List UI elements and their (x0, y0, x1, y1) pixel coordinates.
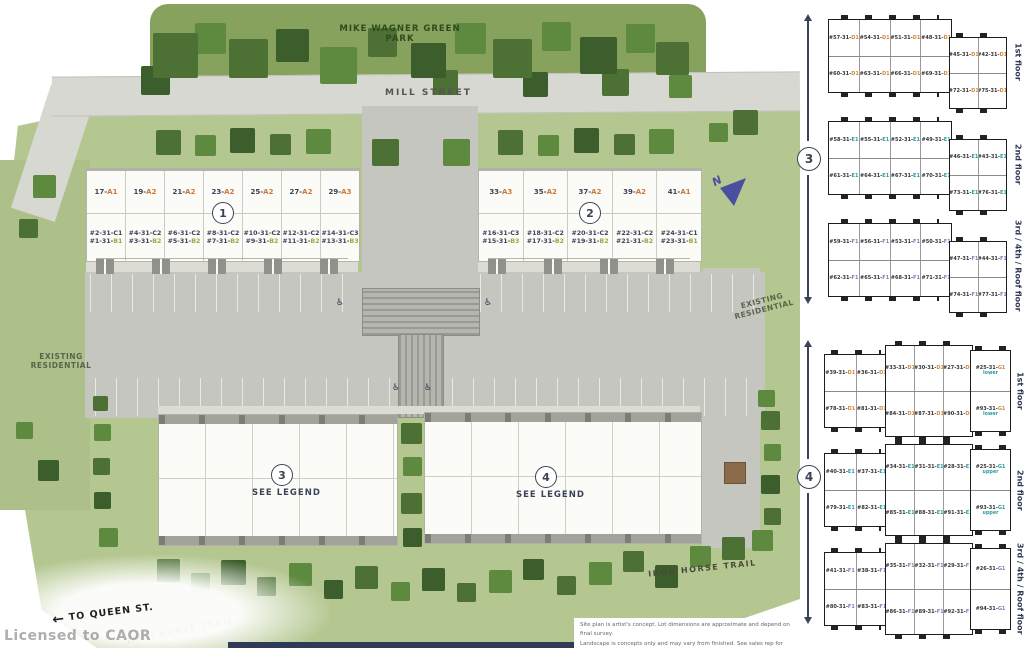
floorplan-annex-block: #47-31-F1#44-31-F1 #74-31-F1#77-31-F1 (949, 241, 1007, 313)
building-3-floorplans: #57-31-D1#54-31-D1#51-31-D1#48-31-D1 #60… (828, 14, 1024, 314)
floorplan-unit: #88-31-E1 (914, 491, 943, 536)
floorplan-unit: #92-31-F1 (943, 590, 972, 635)
floorplan-unit: #90-31-D1 (943, 392, 972, 437)
floorplan-unit: #64-31-E1 (859, 159, 890, 195)
accessible-parking-icon: ♿ (484, 299, 492, 308)
lot-type: A2 (636, 188, 646, 196)
lower-unit: #15-31-B3 (482, 238, 519, 245)
floorplan-unit: #39-31-D1 (825, 355, 856, 391)
bracket-line (807, 175, 809, 297)
upper-unit: #24-31-C1 (661, 230, 698, 237)
floorplan-unit: #77-31-F1 (978, 278, 1007, 313)
floorplan-row: #79-31-E1#82-31-E1 (825, 490, 887, 527)
bracket-arrow-up (804, 340, 812, 347)
floorplan-unit: #65-31-F1 (859, 261, 890, 297)
floorplan-unit: #41-31-F1 (825, 553, 856, 589)
lot-number: 21- (173, 188, 186, 196)
upper-unit: #8-31-C2 (207, 230, 240, 237)
floorplan-b3-2nd: #58-31-E1#55-31-E1#52-31-E1#49-31-E1 #61… (828, 116, 1024, 212)
disclaimer: Site plan is artist's concept. Lot dimen… (574, 618, 802, 648)
floorplan-unit: #71-31-F1 (920, 261, 951, 297)
floorplan-unit: #26-31-G1 (971, 549, 1010, 589)
building-2: 33-A3 #16-31-C3 #15-31-B3 35-A2 #18-31-C… (478, 168, 702, 262)
floor-label: 2nd floor (1012, 443, 1024, 537)
floorplan-main-block: #57-31-D1#54-31-D1#51-31-D1#48-31-D1 #60… (828, 19, 952, 93)
floorplan-b4-3rd: #41-31-F1#38-31-F1 #80-31-F1#83-31-F1 #3… (824, 542, 1020, 636)
floorplan-main-block: #59-31-F1#56-31-F1#53-31-F1#50-31-F1 #62… (828, 223, 952, 297)
floorplan-row: #47-31-F1#44-31-F1 (950, 242, 1006, 277)
lower-unit: #5-31-B2 (168, 238, 201, 245)
floorplan-unit: #38-31-F1 (856, 553, 888, 589)
unit-cell: 21-A2 #6-31-C2 #5-31-B2 (164, 171, 203, 261)
existing-residential-left: EXISTING RESIDENTIAL (30, 352, 92, 370)
floorplan-unit: #49-31-E1 (920, 122, 951, 158)
lot-label: 21-A2 (165, 171, 203, 214)
floorplan-unit: #63-31-D1 (859, 57, 890, 93)
floorplan-unit: #29-31-F1 (943, 544, 972, 589)
bracket-line (807, 347, 809, 459)
lower-unit: #23-31-B1 (661, 238, 698, 245)
floorplan-unit: #36-31-D1 (856, 355, 888, 391)
unit-cell: 19-A2 #4-31-C2 #3-31-B2 (125, 171, 164, 261)
floorplan-unit: #48-31-D1 (920, 20, 951, 56)
floorplan-row: #84-31-D1#87-31-D1#90-31-D1 (886, 391, 972, 437)
floorplan-unit: #40-31-E1 (825, 454, 856, 490)
floorplan-unit: #94-31-G1 (971, 589, 1010, 630)
disclaimer-line2: Landscape is concepts only and may vary … (580, 640, 796, 648)
floorplan-unit: #93-31-G1upper (971, 490, 1010, 531)
lower-unit: #17-31-B2 (527, 238, 564, 245)
floorplan-unit: #34-31-E1 (886, 445, 914, 490)
upper-unit: #12-31-C2 (282, 230, 319, 237)
upper-unit: #6-31-C2 (168, 230, 201, 237)
floorplan-b4-1st: #39-31-D1#36-31-D1 #78-31-D1#81-31-D1 #3… (824, 344, 1020, 438)
lot-type: A2 (185, 188, 195, 196)
disclaimer-line1: Site plan is artist's concept. Lot dimen… (580, 621, 796, 640)
floorplan-unit: #62-31-F1 (829, 261, 859, 297)
lower-unit: #13-31-B3 (321, 238, 358, 245)
floorplan-unit: #80-31-F1 (825, 590, 856, 626)
floorplan-unit: #91-31-E1 (943, 491, 972, 536)
parking-stalls (90, 274, 360, 312)
floorplan-row: #73-31-E1#76-31-E1 (950, 175, 1006, 211)
accessible-parking-icon: ♿ (392, 384, 400, 393)
floorplan-unit: #30-31-D1 (914, 346, 943, 391)
lot-type: A2 (302, 188, 312, 196)
floorplan-b3-3rd: #59-31-F1#56-31-F1#53-31-F1#50-31-F1 #62… (828, 218, 1024, 314)
floorplan-row: #40-31-E1#37-31-E1 (825, 454, 887, 490)
floorplan-mid-block: #33-31-D1#30-31-D1#27-31-D1 #84-31-D1#87… (885, 345, 973, 437)
lot-label: 33-A3 (479, 171, 523, 214)
floorplan-unit: #85-31-E1 (886, 491, 914, 536)
floorplan-unit: #70-31-E1 (920, 159, 951, 195)
upper-unit: #4-31-C2 (129, 230, 162, 237)
north-letter: N (710, 173, 724, 189)
see-legend-label: SEE LEGEND (516, 490, 576, 500)
building-4-floorplans: #39-31-D1#36-31-D1 #78-31-D1#81-31-D1 #3… (824, 344, 1020, 636)
building-2-badge: 2 (579, 202, 601, 224)
unit-numbers: #24-31-C1 #23-31-B1 (657, 214, 701, 261)
lot-number: 33- (489, 188, 502, 196)
floorplan-unit: #50-31-F1 (920, 224, 951, 260)
lot-number: 23- (212, 188, 225, 196)
building-1-garages (96, 258, 348, 274)
building-3-badge: 3 (271, 464, 293, 486)
floorplan-unit: #57-31-D1 (829, 20, 859, 56)
lot-number: 37- (579, 188, 592, 196)
unit-cell: 33-A3 #16-31-C3 #15-31-B3 (479, 171, 523, 261)
floorplan-right-block: #25-31-G1upper#93-31-G1upper (970, 449, 1011, 531)
floorplan-unit: #27-31-D1 (943, 346, 972, 391)
building-1: 17-A1 #2-31-C1 #1-31-B1 19-A2 #4-31-C2 #… (86, 168, 360, 262)
floorplan-row: #78-31-D1#81-31-D1 (825, 391, 887, 428)
floorplan-row: #85-31-E1#88-31-E1#91-31-E1 (886, 490, 972, 536)
lot-type: A2 (263, 188, 273, 196)
floorplan-left-block: #41-31-F1#38-31-F1 #80-31-F1#83-31-F1 (824, 552, 888, 626)
floorplan-unit: #75-31-D1 (978, 74, 1007, 109)
building-4-legend: 4 SEE LEGEND (516, 466, 576, 500)
lot-type: A1 (107, 188, 117, 196)
floorplan-b3-1st: #57-31-D1#54-31-D1#51-31-D1#48-31-D1 #60… (828, 14, 1024, 110)
floorplan-unit: #87-31-D1 (914, 392, 943, 437)
floorplan-unit: #82-31-E1 (856, 491, 888, 527)
lot-number: 39- (623, 188, 636, 196)
group-3-badge: 3 (797, 147, 821, 171)
lot-number: 17- (95, 188, 108, 196)
unit-numbers: #10-31-C2 #9-31-B2 (243, 214, 281, 261)
lot-number: 41- (668, 188, 681, 196)
left-arrow-icon: ← (51, 611, 66, 628)
floorplan-unit: #52-31-E1 (890, 122, 921, 158)
accessible-parking-icon: ♿ (424, 384, 432, 393)
unit-numbers: #18-31-C2 #17-31-B2 (524, 214, 568, 261)
lower-unit: #11-31-B2 (282, 238, 319, 245)
floorplan-unit: #84-31-D1 (886, 392, 914, 437)
floorplan-left-block: #39-31-D1#36-31-D1 #78-31-D1#81-31-D1 (824, 354, 888, 428)
floorplan-unit: #33-31-D1 (886, 346, 914, 391)
floorplan-unit: #89-31-F1 (914, 590, 943, 635)
floorplan-unit: #31-31-E1 (914, 445, 943, 490)
floorplan-unit: #37-31-E1 (856, 454, 888, 490)
parking-stalls (480, 274, 760, 312)
tree-canopies-bottom (0, 0, 1, 1)
lower-unit: #19-31-B2 (571, 238, 608, 245)
floorplan-annex-block: #46-31-E1#43-31-E1 #73-31-E1#76-31-E1 (949, 139, 1007, 211)
unit-numbers: #6-31-C2 #5-31-B2 (165, 214, 203, 261)
licensed-watermark: Licensed to CAOR (4, 628, 151, 644)
bracket-arrow-down (804, 617, 812, 624)
accessible-parking-icon: ♿ (336, 299, 344, 308)
floorplan-row: #34-31-E1#31-31-E1#28-31-E1 (886, 445, 972, 490)
lot-number: 35- (534, 188, 547, 196)
floorplan-unit: #59-31-F1 (829, 224, 859, 260)
floor-label: 2nd floor (1010, 116, 1024, 212)
lower-unit: #1-31-B1 (90, 238, 123, 245)
floorplan-row: #62-31-F1#65-31-F1#68-31-F1#71-31-F1 (829, 260, 951, 297)
group-4-badge: 4 (797, 465, 821, 489)
floorplan-row: #45-31-D1#42-31-D1 (950, 38, 1006, 73)
floorplan-unit: #67-31-E1 (890, 159, 921, 195)
lot-label: 17-A1 (87, 171, 125, 214)
floorplan-unit: #43-31-E1 (978, 140, 1007, 175)
lot-type: A3 (341, 188, 351, 196)
crosswalk-hatch (362, 288, 480, 336)
floorplan-unit: #81-31-D1 (856, 392, 888, 428)
unit-numbers: #12-31-C2 #11-31-B2 (282, 214, 320, 261)
floorplan-row: #59-31-F1#56-31-F1#53-31-F1#50-31-F1 (829, 224, 951, 260)
floorplan-unit: #25-31-G1lower (971, 351, 1010, 391)
lot-label: 25-A2 (243, 171, 281, 214)
floorplan-unit: #79-31-E1 (825, 491, 856, 527)
floorplan-unit: #25-31-G1upper (971, 450, 1010, 490)
unit-numbers: #22-31-C2 #21-31-B2 (613, 214, 657, 261)
central-driveway (362, 106, 478, 292)
floorplan-row: #72-31-D1#75-31-D1 (950, 73, 1006, 109)
lot-number: 27- (290, 188, 303, 196)
building-1-badge: 1 (212, 202, 234, 224)
floorplan-row: #39-31-D1#36-31-D1 (825, 355, 887, 391)
unit-numbers: #16-31-C3 #15-31-B3 (479, 214, 523, 261)
lot-label: 27-A2 (282, 171, 320, 214)
bracket-arrow-down (804, 297, 812, 304)
site-kiosk (724, 462, 746, 484)
floorplan-unit: #47-31-F1 (950, 242, 978, 277)
floorplan-unit: #69-31-D1 (920, 57, 951, 93)
floorplan-unit: #86-31-F1 (886, 590, 914, 635)
upper-unit: #2-31-C1 (90, 230, 123, 237)
floorplan-row: #33-31-D1#30-31-D1#27-31-D1 (886, 346, 972, 391)
floor-label: 1st floor (1010, 14, 1024, 110)
building-4-badge: 4 (535, 466, 557, 488)
upper-unit: #16-31-C3 (482, 230, 519, 237)
lot-label: 35-A2 (524, 171, 568, 214)
floorplan-unit: #78-31-D1 (825, 392, 856, 428)
lower-unit: #9-31-B2 (246, 238, 279, 245)
floorplan-unit: #53-31-F1 (890, 224, 921, 260)
unit-numbers: #14-31-C3 #13-31-B3 (321, 214, 359, 261)
lot-type: A3 (502, 188, 512, 196)
bracket-arrow-up (804, 14, 812, 21)
lot-label: 29-A3 (321, 171, 359, 214)
lot-type: A2 (591, 188, 601, 196)
lot-number: 25- (251, 188, 264, 196)
unit-numbers: #2-31-C1 #1-31-B1 (87, 214, 125, 261)
floorplan-unit: #73-31-E1 (950, 176, 978, 211)
floorplan-unit: #61-31-E1 (829, 159, 859, 195)
floorplan-right-block: #26-31-G1#94-31-G1 (970, 548, 1011, 630)
floorplan-row: #80-31-F1#83-31-F1 (825, 589, 887, 626)
street-label: MILL STREET (385, 88, 472, 98)
floorplan-unit: #93-31-G1lower (971, 391, 1010, 432)
unit-numbers: #4-31-C2 #3-31-B2 (126, 214, 164, 261)
floorplan-unit: #60-31-D1 (829, 57, 859, 93)
lot-type: A2 (146, 188, 156, 196)
lower-unit: #21-31-B2 (616, 238, 653, 245)
floorplan-unit: #55-31-E1 (859, 122, 890, 158)
floorplan-right-block: #25-31-G1lower#93-31-G1lower (970, 350, 1011, 432)
bracket-line (807, 493, 809, 617)
upper-unit: #14-31-C3 (321, 230, 358, 237)
footer-bar (228, 642, 574, 648)
floorplan-mid-block: #35-31-F1#32-31-F1#29-31-F1 #86-31-F1#89… (885, 543, 973, 635)
floorplan-row: #41-31-F1#38-31-F1 (825, 553, 887, 589)
unit-cell: 27-A2 #12-31-C2 #11-31-B2 (281, 171, 320, 261)
floorplan-unit: #76-31-E1 (978, 176, 1007, 211)
floorplan-unit: #54-31-D1 (859, 20, 890, 56)
lot-label: 19-A2 (126, 171, 164, 214)
lot-type: A1 (680, 188, 690, 196)
floorplan-row: #46-31-E1#43-31-E1 (950, 140, 1006, 175)
north-arrow-icon: N (708, 170, 752, 214)
floorplan-unit: #74-31-F1 (950, 278, 978, 313)
building-2-garages (488, 258, 690, 274)
floorplan-unit: #44-31-F1 (978, 242, 1007, 277)
park-label: MIKE WAGNER GREEN PARK (320, 24, 480, 44)
floorplan-row: #60-31-D1#63-31-D1#66-31-D1#69-31-D1 (829, 56, 951, 93)
unit-cell: 29-A3 #14-31-C3 #13-31-B3 (320, 171, 359, 261)
floorplan-row: #74-31-F1#77-31-F1 (950, 277, 1006, 313)
unit-cell: 35-A2 #18-31-C2 #17-31-B2 (523, 171, 568, 261)
floorplan-row: #61-31-E1#64-31-E1#67-31-E1#70-31-E1 (829, 158, 951, 195)
floorplan-unit: #68-31-F1 (890, 261, 921, 297)
upper-unit: #22-31-C2 (616, 230, 653, 237)
floorplan-unit: #32-31-F1 (914, 544, 943, 589)
floorplan-b4-2nd: #40-31-E1#37-31-E1 #79-31-E1#82-31-E1 #3… (824, 443, 1020, 537)
lot-type: A2 (547, 188, 557, 196)
floorplan-row: #35-31-F1#32-31-F1#29-31-F1 (886, 544, 972, 589)
lower-unit: #7-31-B2 (207, 238, 240, 245)
floor-label: 1st floor (1012, 344, 1024, 438)
bracket-line (807, 21, 809, 141)
floorplan-unit: #28-31-E1 (943, 445, 972, 490)
site-plan-page: ♿ ♿ ♿ ♿ 17-A1 #2-31-C1 #1-31-B1 19-A2 #4… (0, 0, 1024, 648)
floorplan-mid-block: #34-31-E1#31-31-E1#28-31-E1 #85-31-E1#88… (885, 444, 973, 536)
floorplan-annex-block: #45-31-D1#42-31-D1 #72-31-D1#75-31-D1 (949, 37, 1007, 109)
lot-label: 41-A1 (657, 171, 701, 214)
floorplan-unit: #35-31-F1 (886, 544, 914, 589)
unit-cell: 41-A1 #24-31-C1 #23-31-B1 (656, 171, 701, 261)
floor-label: 3rd / 4th / Roof floor (1010, 218, 1024, 314)
lot-number: 19- (134, 188, 147, 196)
unit-cell: 25-A2 #10-31-C2 #9-31-B2 (242, 171, 281, 261)
floorplan-unit: #83-31-F1 (856, 590, 888, 626)
see-legend-label: SEE LEGEND (252, 488, 312, 498)
unit-cell: 17-A1 #2-31-C1 #1-31-B1 (87, 171, 125, 261)
unit-cell: 39-A2 #22-31-C2 #21-31-B2 (612, 171, 657, 261)
floorplan-row: #86-31-F1#89-31-F1#92-31-F1 (886, 589, 972, 635)
floorplan-row: #57-31-D1#54-31-D1#51-31-D1#48-31-D1 (829, 20, 951, 56)
floorplan-left-block: #40-31-E1#37-31-E1 #79-31-E1#82-31-E1 (824, 453, 888, 527)
lot-number: 29- (329, 188, 342, 196)
floor-label: 3rd / 4th / Roof floor (1012, 542, 1024, 636)
upper-unit: #18-31-C2 (527, 230, 564, 237)
lot-label: 39-A2 (613, 171, 657, 214)
floorplan-unit: #46-31-E1 (950, 140, 978, 175)
floorplan-unit: #51-31-D1 (890, 20, 921, 56)
floorplan-row: #58-31-E1#55-31-E1#52-31-E1#49-31-E1 (829, 122, 951, 158)
lot-type: A2 (224, 188, 234, 196)
floorplan-unit: #42-31-D1 (978, 38, 1007, 73)
floorplan-unit: #66-31-D1 (890, 57, 921, 93)
floorplan-unit: #45-31-D1 (950, 38, 978, 73)
lower-unit: #3-31-B2 (129, 238, 162, 245)
upper-unit: #20-31-C2 (571, 230, 608, 237)
upper-unit: #10-31-C2 (243, 230, 280, 237)
building-3-legend: 3 SEE LEGEND (252, 464, 312, 498)
floorplan-unit: #58-31-E1 (829, 122, 859, 158)
floorplan-main-block: #58-31-E1#55-31-E1#52-31-E1#49-31-E1 #61… (828, 121, 952, 195)
floorplan-unit: #72-31-D1 (950, 74, 978, 109)
floorplan-unit: #56-31-F1 (859, 224, 890, 260)
